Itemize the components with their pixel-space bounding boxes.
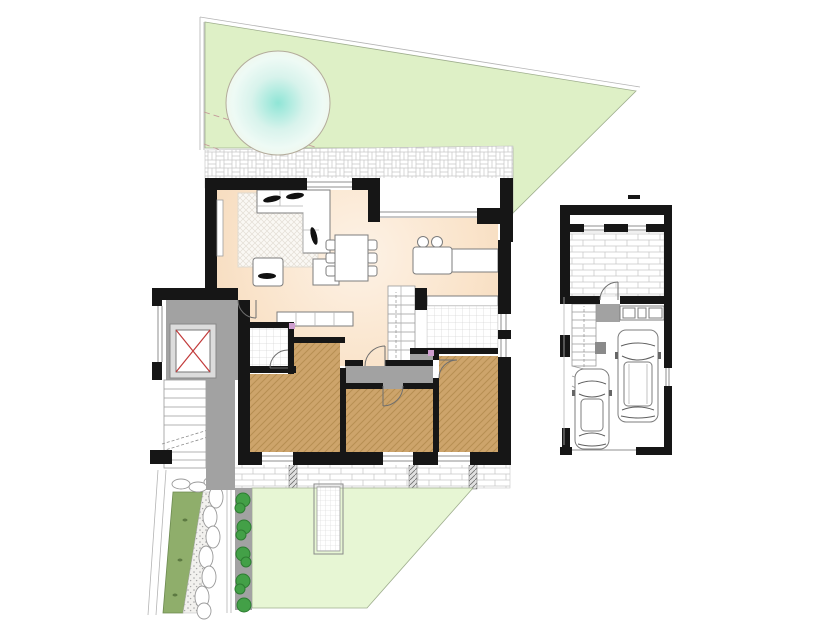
wall-segment — [664, 205, 672, 368]
wall-segment — [288, 337, 294, 374]
wall-segment — [560, 205, 672, 215]
stair-post — [595, 342, 606, 354]
kitchen-island — [413, 247, 452, 274]
wall-segment — [415, 288, 427, 310]
wall-segment — [352, 178, 380, 190]
wall-segment — [156, 288, 238, 300]
wall-segment — [152, 362, 162, 380]
kitchen-counter — [427, 296, 498, 306]
wall-segment — [385, 360, 437, 366]
wall-segment — [568, 224, 584, 232]
car-mirror — [615, 352, 618, 359]
wall-segment — [498, 240, 511, 314]
shrub — [237, 598, 251, 612]
armchair — [253, 258, 283, 286]
wall-segment — [244, 322, 294, 328]
south-lawn — [252, 488, 473, 608]
garage-landing — [596, 304, 620, 322]
wall-segment — [293, 337, 345, 343]
south-landscaping — [148, 464, 510, 619]
wall-segment — [410, 348, 498, 354]
armchair-cushion — [258, 273, 276, 279]
tree-canopy — [226, 51, 330, 155]
door-gap — [433, 360, 439, 378]
dining-table — [335, 235, 368, 281]
bar-stool — [418, 237, 429, 248]
bedroom-3-floor — [439, 356, 498, 452]
car-mirror — [658, 352, 661, 359]
wall-segment — [477, 208, 503, 224]
wall-segment — [500, 178, 513, 242]
dining-set — [326, 235, 377, 281]
survey-tick — [628, 195, 640, 199]
car-roof — [624, 362, 652, 406]
wall-segment — [293, 452, 383, 465]
car-suv — [615, 330, 661, 422]
wall-segment — [560, 447, 572, 455]
paving-pillar-1 — [289, 464, 297, 489]
car-small — [572, 369, 612, 449]
slope-speckle — [178, 559, 183, 562]
bedroom-2-floor — [345, 389, 433, 452]
slope-speckle — [173, 594, 178, 597]
car-mirror — [609, 390, 612, 396]
wall-segment — [560, 335, 570, 357]
counter-appliance — [638, 308, 646, 318]
paving-pillar-3 — [469, 464, 477, 489]
wall-segment — [150, 450, 172, 464]
wall-segment — [345, 383, 383, 389]
wall-segment — [498, 357, 511, 465]
car-roof — [581, 399, 603, 431]
wall-segment — [470, 452, 511, 465]
wall-segment — [413, 452, 438, 465]
wall-segment — [646, 224, 664, 232]
wall-segment — [205, 178, 307, 190]
counter-appliance — [623, 308, 635, 318]
left-wall-window — [217, 200, 223, 256]
garage-paved-room — [568, 232, 664, 296]
column-marker — [289, 323, 295, 329]
kitchen-floor — [427, 306, 498, 348]
counter-appliance — [649, 308, 662, 318]
kitchen-counter-peninsula — [452, 249, 498, 272]
wall-segment — [368, 190, 380, 222]
wall-segment — [560, 205, 570, 297]
floor-plan-drawing — [0, 0, 840, 630]
paving-pillar-2 — [409, 464, 417, 489]
lightwell-grate — [317, 487, 340, 551]
wall-segment — [403, 383, 437, 389]
wall-segment — [498, 330, 511, 339]
main-house — [150, 178, 513, 490]
garage-annex — [560, 195, 672, 455]
wall-segment — [664, 386, 672, 447]
entry-glazing — [158, 306, 162, 362]
wall-segment — [340, 368, 346, 452]
wall-segment — [240, 366, 296, 373]
wall-segment — [560, 296, 600, 304]
wall-segment — [604, 224, 628, 232]
wall-segment — [620, 296, 664, 304]
wall-segment — [205, 178, 217, 290]
car-mirror — [572, 390, 575, 396]
slope-speckle — [183, 519, 188, 522]
wall-segment — [152, 288, 162, 306]
column-marker — [428, 350, 434, 356]
wall-segment — [636, 447, 672, 455]
wall-segment — [238, 452, 262, 465]
south-paving-strip — [220, 464, 510, 488]
wall-segment — [345, 360, 363, 366]
bathroom-floor — [248, 328, 292, 368]
bar-stool — [432, 237, 443, 248]
floor-plan-page — [0, 0, 840, 630]
side-walk-strip — [206, 380, 235, 490]
